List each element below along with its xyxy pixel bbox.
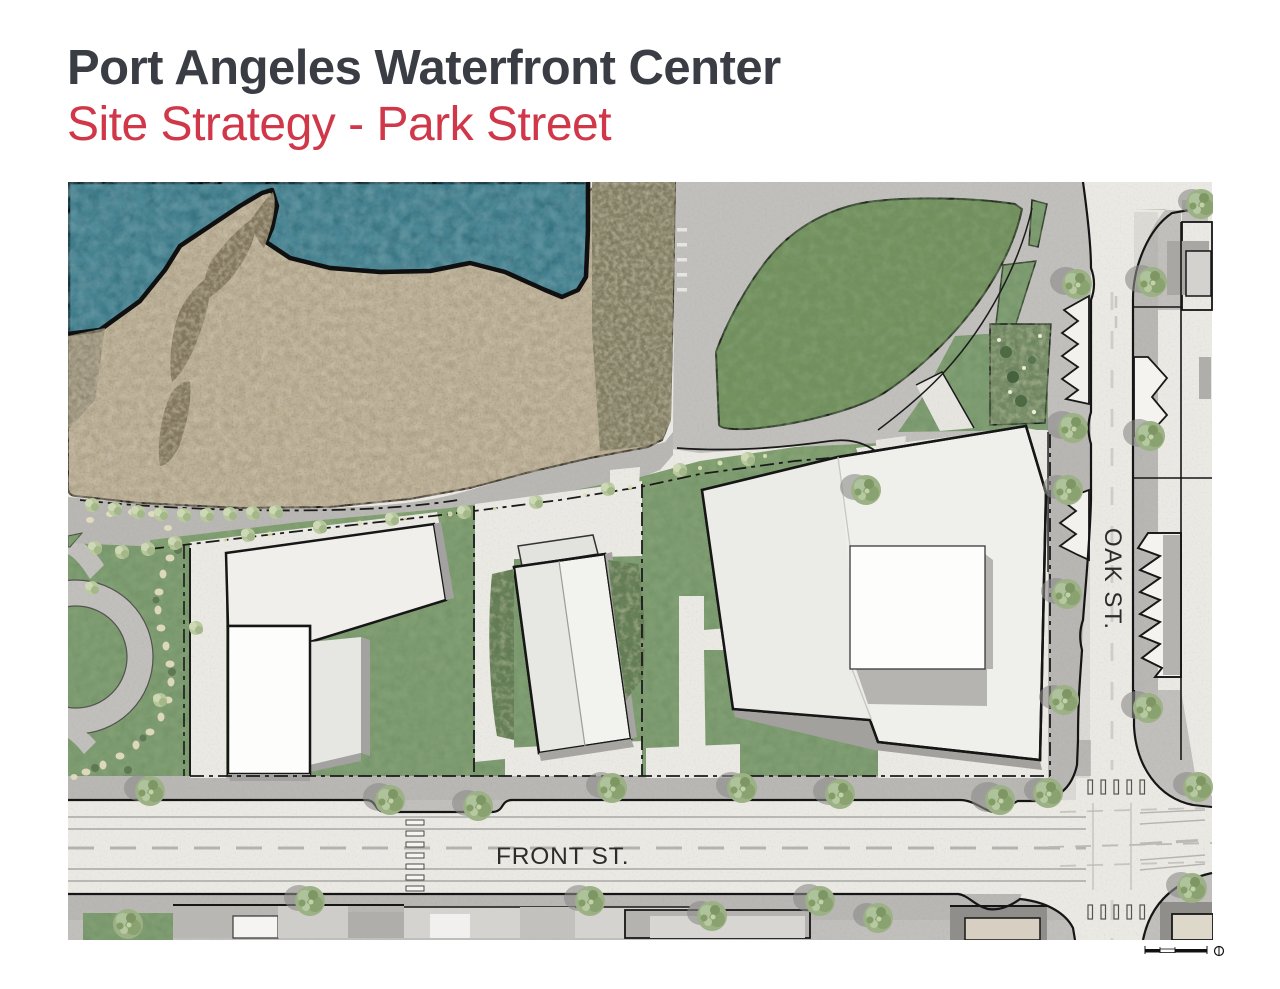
svg-text:OAK ST.: OAK ST. bbox=[1099, 528, 1126, 631]
svg-text:Site Strategy - Park Street: Site Strategy - Park Street bbox=[67, 98, 611, 151]
svg-text:FRONT ST.: FRONT ST. bbox=[496, 843, 629, 870]
svg-text:Port Angeles Waterfront Center: Port Angeles Waterfront Center bbox=[67, 41, 781, 95]
